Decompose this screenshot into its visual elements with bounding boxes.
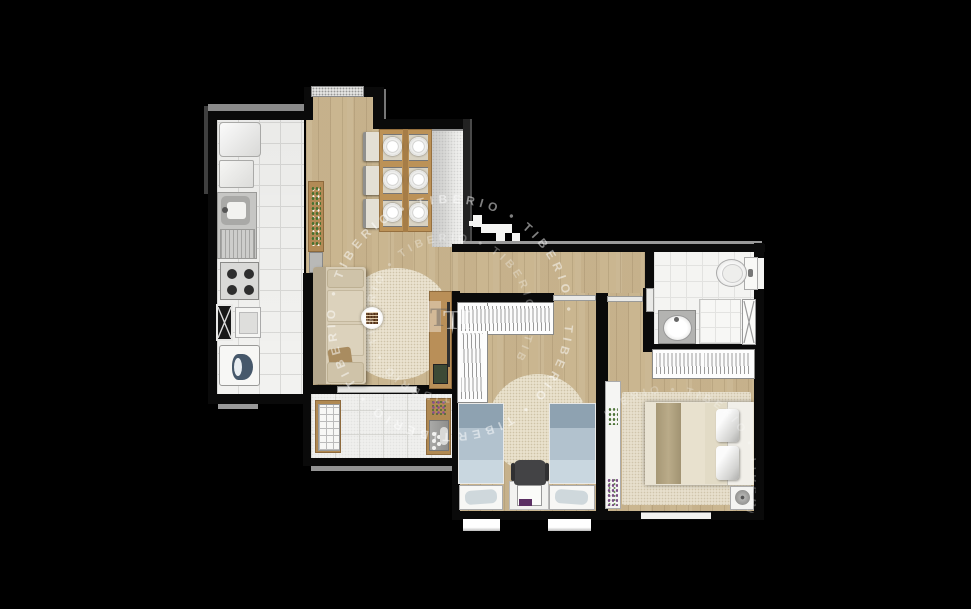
svg-text:TIBERIO • TIBERIO • TIBERIO •: TIBERIO • TIBERIO • TIBERIO • TIBERIO • … bbox=[574, 384, 762, 572]
svg-text:TI: TI bbox=[443, 305, 472, 335]
